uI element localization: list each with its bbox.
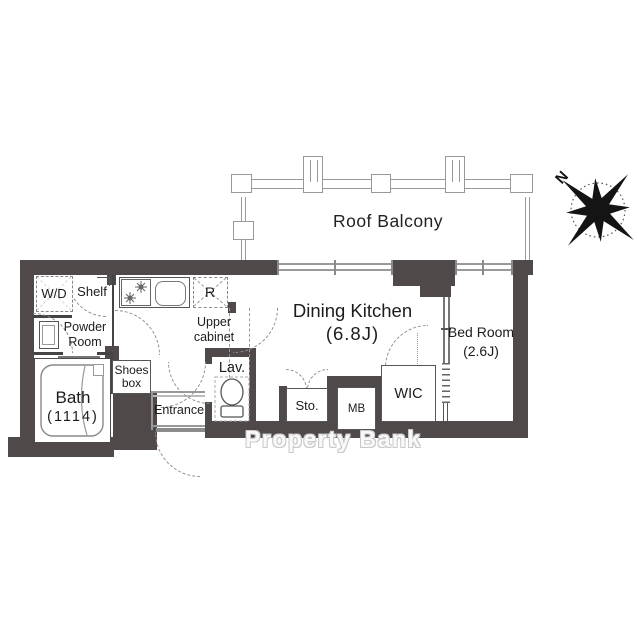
window-tick xyxy=(277,260,279,275)
bath-size: (1114) xyxy=(28,409,118,425)
kitchen-sink xyxy=(155,281,186,306)
door-swing-arc xyxy=(115,310,160,355)
window-pane-line xyxy=(455,269,513,271)
compass-rose: N xyxy=(552,162,639,254)
powder-room-label: Powder Room xyxy=(58,320,112,350)
front-door-swing-arc xyxy=(155,432,200,477)
balcony-post xyxy=(510,174,533,193)
entrance-label: Entrance xyxy=(152,403,206,417)
washer-dryer-label: W/D xyxy=(37,277,71,310)
window-pane-line xyxy=(455,263,513,265)
balcony-post-slot xyxy=(452,160,460,182)
storage-label: Sto. xyxy=(295,398,318,413)
dining-kitchen-label: Dining Kitchen xyxy=(255,300,450,322)
burner-icon xyxy=(124,281,147,304)
window-tick xyxy=(391,260,393,275)
bedroom-partition-end xyxy=(443,403,448,421)
shoes-box-label-2: box xyxy=(122,377,141,390)
powder-room-label-2: Room xyxy=(58,335,112,350)
balcony-label: Roof Balcony xyxy=(298,211,478,232)
window-tick xyxy=(334,260,336,275)
window-tick xyxy=(455,260,457,275)
shoes-box: Shoes box xyxy=(112,360,151,394)
storage-door-arc xyxy=(307,369,328,390)
toilet-icon xyxy=(214,376,250,422)
bed-room-size: (2.6J) xyxy=(445,343,517,359)
bath-counter xyxy=(93,364,104,376)
balcony-post xyxy=(231,174,252,193)
balcony-post-tall xyxy=(445,156,465,193)
balcony-post xyxy=(233,221,254,240)
window-tick xyxy=(482,260,484,275)
upper-cabinet-label-1: Upper xyxy=(186,315,242,330)
refrigerator-box: R xyxy=(193,277,228,308)
lavatory-label: Lav. xyxy=(212,360,252,376)
bed-room-label: Bed Room xyxy=(445,324,517,340)
powder-sink xyxy=(39,321,59,349)
washer-dryer-box: W/D xyxy=(36,276,73,312)
wall xyxy=(205,402,212,438)
powder-sink-basin xyxy=(42,325,55,345)
powder-room-label-1: Powder xyxy=(58,320,112,335)
compass-star-long xyxy=(562,174,634,246)
floor-plan: Roof Balcony N xyxy=(0,0,639,640)
window-tick xyxy=(511,260,513,275)
shelf-label: Shelf xyxy=(72,284,112,299)
dining-kitchen-size: (6.8J) xyxy=(255,323,450,345)
wic-box: WIC xyxy=(381,365,436,422)
wic-label: WIC xyxy=(394,386,422,402)
stove xyxy=(121,279,151,306)
meter-box: MB xyxy=(337,387,376,430)
balcony-post xyxy=(371,174,391,193)
wall xyxy=(22,260,277,275)
watermark: Property Bank xyxy=(245,426,422,453)
balcony-post-slot xyxy=(310,160,318,182)
upper-cabinet-label-2: cabinet xyxy=(186,330,242,345)
upper-cabinet-label: Upper cabinet xyxy=(186,315,242,345)
wall xyxy=(393,260,455,286)
entrance-sill-line xyxy=(153,425,205,427)
wall-thin xyxy=(112,275,114,347)
balcony-post-tall xyxy=(303,156,323,193)
bedroom-partition-hatch xyxy=(442,363,450,403)
storage-box: Sto. xyxy=(286,388,328,422)
meter-box-label: MB xyxy=(348,403,365,415)
refrigerator-label: R xyxy=(194,278,226,306)
storage-door-arc xyxy=(286,369,307,390)
bath-label: Bath xyxy=(36,388,110,408)
balcony-rail-connector-right xyxy=(525,197,530,261)
